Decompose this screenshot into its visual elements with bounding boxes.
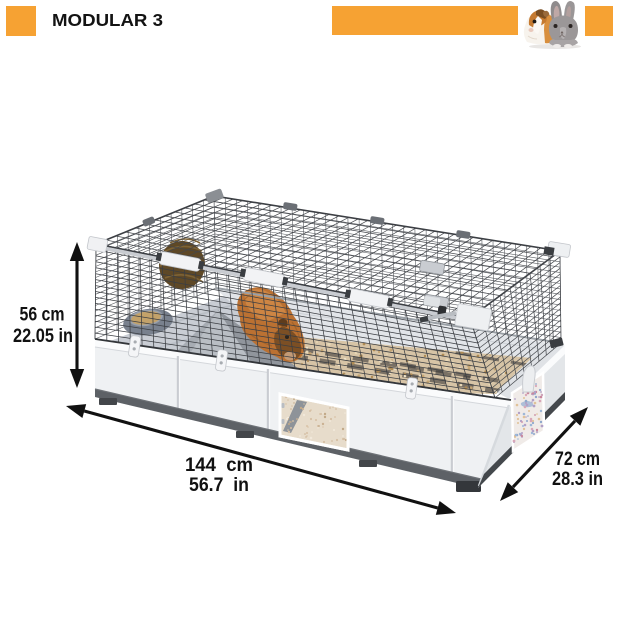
svg-text:MODULAR 3: MODULAR 3	[52, 10, 163, 30]
svg-text:22.05 in: 22.05 in	[13, 325, 73, 347]
svg-text:28.3 in: 28.3 in	[552, 468, 603, 490]
svg-text:144 cm: 144 cm	[185, 454, 253, 476]
svg-text:56 cm: 56 cm	[20, 304, 65, 326]
svg-text:72 cm: 72 cm	[555, 448, 600, 470]
svg-text:56.7 in: 56.7 in	[189, 474, 249, 496]
